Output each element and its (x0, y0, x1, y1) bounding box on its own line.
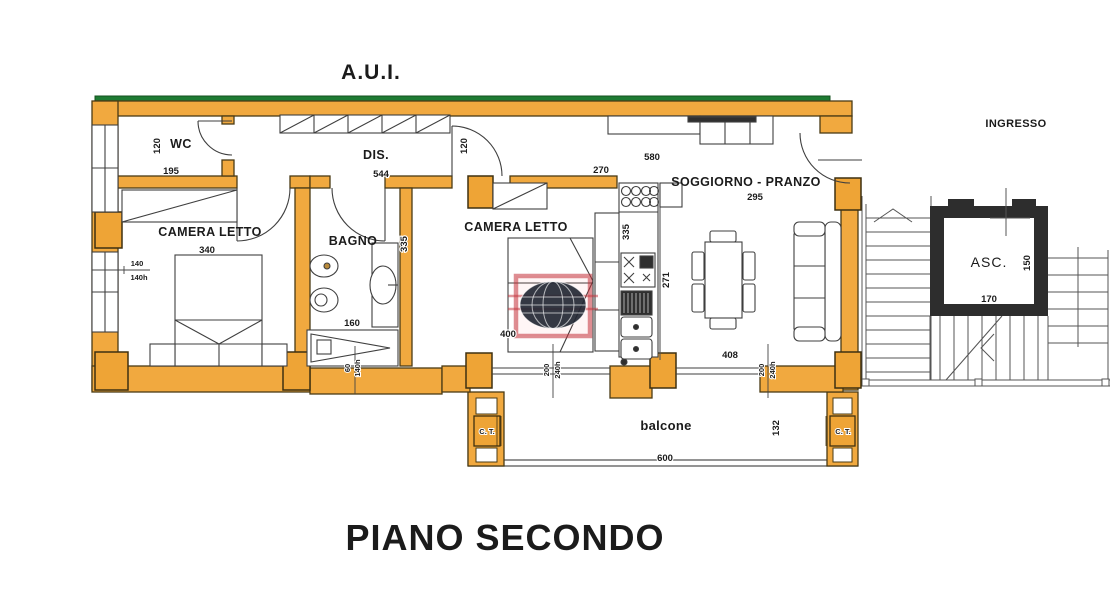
dining-table (705, 242, 742, 318)
label-asc: ASC. (971, 254, 1008, 270)
label-ingresso: INGRESSO (985, 118, 1046, 130)
green-strip (95, 96, 830, 101)
washbasin (370, 243, 398, 327)
nightstand (150, 344, 175, 366)
floor-plan-svg: A.U.I. PIANO SECONDO WC 120 195 DIS. 544… (0, 0, 1115, 616)
dim-asc-width: 170 (981, 294, 997, 305)
landing-post (862, 379, 869, 386)
chair (692, 252, 704, 280)
french-window-2 (676, 368, 760, 374)
dim-fw1-h: 240h (553, 361, 562, 379)
drainer (621, 291, 652, 315)
dim-camera1-width: 340 (199, 245, 215, 256)
french-window-1 (492, 368, 610, 374)
page-title: A.U.I. (341, 61, 401, 84)
hatched-wardrobe (280, 115, 450, 133)
label-wc: WC (170, 137, 192, 151)
wall-wc-bottom-b (290, 176, 310, 188)
tv (688, 117, 756, 122)
label-bagno: BAGNO (329, 234, 378, 248)
label-ct-left: C. T. (479, 427, 494, 436)
dim-left-window-h: 140h (130, 273, 148, 282)
dim-shower-length: 160 (344, 318, 360, 329)
landing-post (975, 379, 982, 386)
bed-double (175, 255, 262, 366)
dim-balcone-depth: 132 (771, 420, 782, 436)
dim-soggiorno-width: 295 (747, 192, 764, 203)
nightstand (262, 344, 287, 366)
tall-cabinet (595, 213, 620, 351)
dim-living-width: 408 (722, 350, 738, 361)
dim-wc-width: 195 (163, 166, 180, 177)
stair-lower-flight-risers (930, 316, 1048, 380)
landing-edge (862, 380, 1110, 386)
kitchen (619, 183, 682, 365)
wall-top-corner (820, 116, 852, 133)
label-balcone: balcone (640, 418, 691, 433)
sofa (794, 222, 841, 341)
watermark-globe-logo (508, 276, 598, 336)
landing-post (1102, 379, 1109, 386)
dim-bagno-depth: 335 (399, 235, 410, 252)
elevator-tab (1012, 199, 1036, 207)
label-dis: DIS. (363, 148, 389, 162)
label-ct-right: C. T. (835, 427, 850, 436)
dim-fw2-h: 240h (768, 361, 777, 379)
label-soggiorno-pranzo: SOGGIORNO - PRANZO (671, 175, 821, 189)
dim-camera2-width: 400 (500, 329, 516, 340)
chair (743, 284, 755, 312)
dim-bagno-window-h: 140h (353, 359, 362, 377)
closet (493, 183, 547, 209)
chair (743, 252, 755, 280)
dim-fw1-w: 200 (542, 364, 551, 377)
wall-bottom-bagno (310, 368, 442, 394)
stair-up-arrow-icon (874, 209, 912, 222)
wall-wc-right-a (222, 116, 234, 124)
dim-dis-length: 544 (373, 169, 390, 180)
dim-soggiorno-length: 580 (644, 152, 660, 163)
wall-dis-bagno-b (385, 176, 452, 188)
wall-wc-right-b (222, 160, 234, 176)
elevator-tab (948, 199, 974, 207)
pillar (466, 353, 492, 388)
wall-kitchen-ext (610, 366, 652, 398)
dining-table-set (692, 231, 755, 329)
floor-plan-image: A.U.I. PIANO SECONDO WC 120 195 DIS. 544… (0, 0, 1115, 616)
wall-dis-bagno-a (310, 176, 330, 188)
door-wc (198, 121, 232, 155)
dim-balcone-length: 600 (657, 453, 673, 464)
wall-bagno-camera2 (400, 188, 412, 366)
floor-title: PIANO SECONDO (345, 517, 664, 558)
label-camera-letto-2: CAMERA LETTO (464, 220, 567, 234)
chair (710, 231, 736, 242)
wall-wc-bottom-a (118, 176, 237, 188)
pillar-camera2-door (468, 176, 493, 208)
chair (692, 284, 704, 312)
dim-bagno-window-w: 60 (343, 364, 352, 372)
toilet (310, 288, 338, 312)
pillar (835, 352, 861, 388)
sideboard (608, 116, 773, 144)
wardrobe (122, 190, 237, 222)
furniture-bagno (307, 243, 398, 366)
dim-asc-depth: 150 (1022, 255, 1033, 271)
dim-fw2-w: 200 (757, 364, 766, 377)
dim-camera2-door-side: 120 (459, 138, 470, 154)
dim-left-window-w: 140 (131, 259, 144, 268)
stove (621, 253, 655, 287)
chair (710, 318, 736, 329)
bidet (310, 255, 338, 277)
pillar (650, 353, 676, 388)
stair-right-flight-treads (1048, 247, 1108, 380)
dim-camera2-top: 270 (593, 165, 609, 176)
wall-top (95, 101, 852, 116)
pillar (95, 212, 122, 248)
dim-kitchen-counter: 335 (621, 223, 632, 240)
stair-left-flight-treads (866, 196, 931, 380)
dim-kitchen-depth: 271 (661, 271, 672, 288)
pillar (95, 352, 128, 390)
label-camera-letto-1: CAMERA LETTO (158, 225, 261, 239)
dim-wc-depth: 120 (152, 138, 163, 154)
